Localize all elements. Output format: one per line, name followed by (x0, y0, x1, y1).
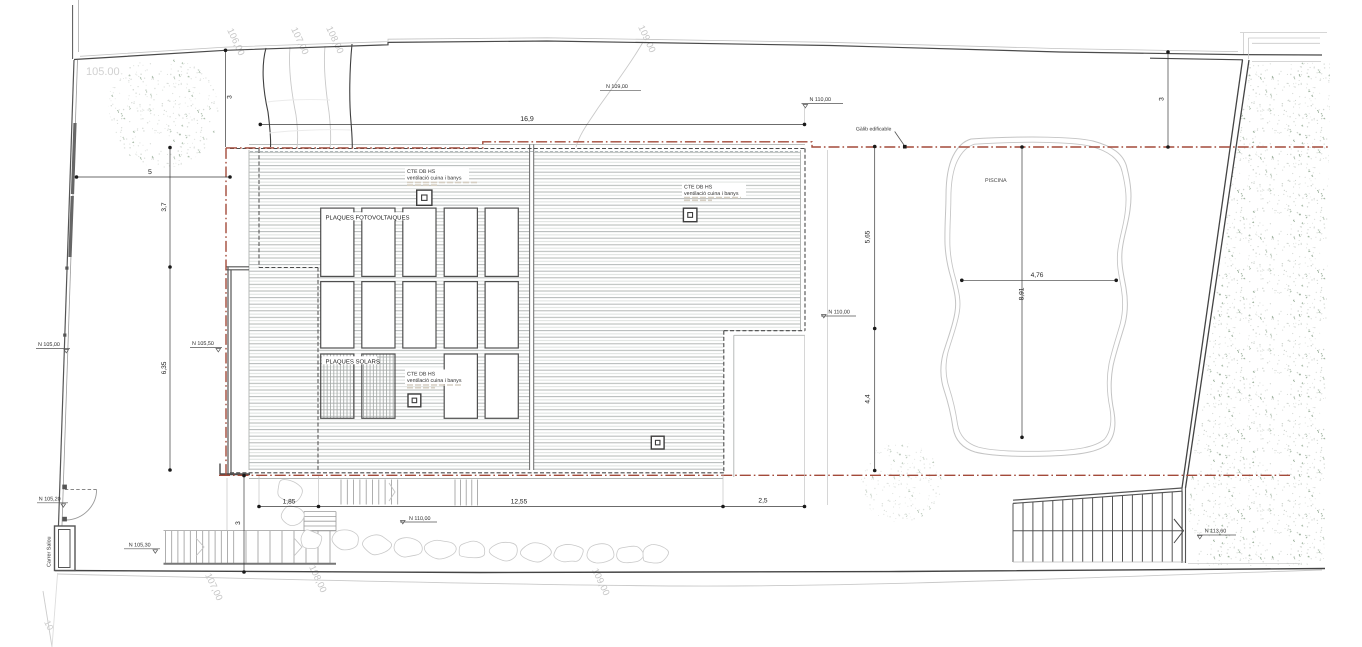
svg-text:3: 3 (1159, 97, 1166, 101)
svg-text:3: 3 (227, 95, 234, 99)
svg-text:CTE DB HS: CTE DB HS (684, 185, 713, 191)
svg-text:N 105,50: N 105,50 (192, 341, 214, 347)
svg-text:4,4: 4,4 (865, 394, 872, 403)
svg-text:3: 3 (235, 521, 242, 525)
svg-text:105.00: 105.00 (86, 66, 120, 78)
svg-text:16,9: 16,9 (520, 116, 534, 123)
svg-text:3,7: 3,7 (161, 202, 168, 211)
svg-text:N 105,30: N 105,30 (129, 543, 151, 549)
svg-text:12,55: 12,55 (511, 499, 528, 506)
svg-text:Gàlib edificable: Gàlib edificable (856, 127, 892, 133)
svg-text:4,76: 4,76 (1031, 272, 1044, 279)
svg-text:PISCINA: PISCINA (985, 178, 1007, 184)
svg-text:Carrer Salou: Carrer Salou (47, 536, 53, 567)
svg-text:N 110,00: N 110,00 (409, 516, 430, 522)
svg-text:PLAQUES SOLARS: PLAQUES SOLARS (326, 358, 380, 365)
svg-text:N 105,00: N 105,00 (38, 342, 60, 348)
svg-text:1,85: 1,85 (283, 499, 296, 506)
svg-text:N 113,60: N 113,60 (1205, 529, 1226, 535)
svg-text:5,65: 5,65 (865, 230, 872, 243)
svg-text:6,35: 6,35 (161, 361, 168, 374)
svg-text:2,5: 2,5 (758, 498, 767, 505)
svg-text:5: 5 (148, 169, 152, 176)
svg-text:CTE DB HS: CTE DB HS (407, 169, 436, 175)
svg-text:CTE DB HS: CTE DB HS (407, 372, 436, 378)
svg-text:ventilació cuina i banys: ventilació cuina i banys (684, 191, 739, 197)
svg-text:N 110,00: N 110,00 (810, 97, 831, 103)
svg-text:8,91: 8,91 (1018, 287, 1025, 300)
svg-text:N 105,20: N 105,20 (39, 497, 61, 503)
svg-text:PLAQUES FOTOVOLTAIQUES: PLAQUES FOTOVOLTAIQUES (326, 214, 410, 221)
svg-text:ventilació cuina i banys: ventilació cuina i banys (407, 175, 462, 181)
svg-text:N 110,00: N 110,00 (828, 310, 849, 316)
svg-text:N 109,00: N 109,00 (606, 84, 628, 90)
svg-text:ventilació cuina i banys: ventilació cuina i banys (407, 378, 462, 384)
